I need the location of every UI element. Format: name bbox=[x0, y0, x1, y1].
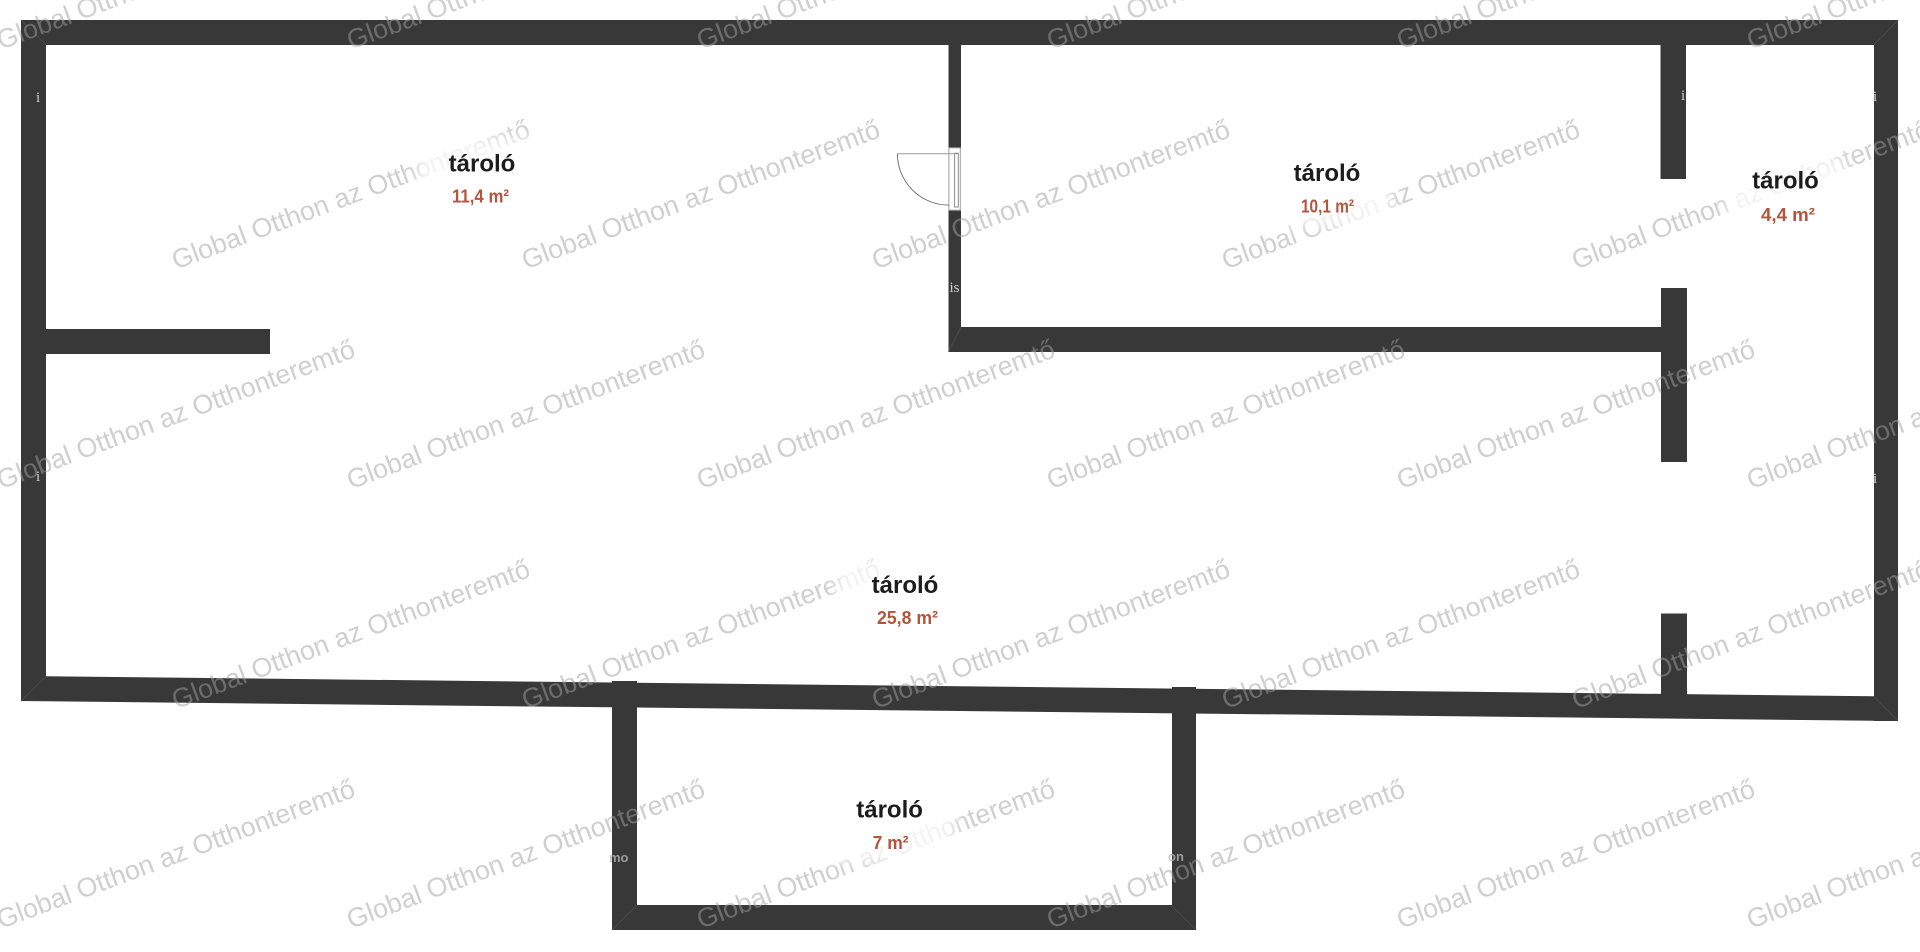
svg-text:on: on bbox=[1168, 849, 1184, 864]
svg-text:tároló: tároló bbox=[449, 151, 516, 178]
svg-text:is: is bbox=[950, 280, 960, 296]
svg-text:i: i bbox=[36, 469, 40, 485]
svg-text:11,4 m²: 11,4 m² bbox=[452, 185, 509, 206]
svg-text:tároló: tároló bbox=[1752, 168, 1819, 195]
svg-text:25,8 m²: 25,8 m² bbox=[877, 607, 938, 628]
svg-text:10,1 m²: 10,1 m² bbox=[1301, 196, 1354, 217]
svg-text:7 m²: 7 m² bbox=[873, 832, 909, 853]
svg-text:i: i bbox=[1873, 471, 1877, 487]
svg-text:i: i bbox=[1681, 88, 1685, 104]
svg-text:tároló: tároló bbox=[1294, 160, 1361, 187]
svg-text:4,4 m²: 4,4 m² bbox=[1761, 204, 1815, 225]
svg-text:i: i bbox=[1873, 89, 1877, 105]
svg-text:tároló: tároló bbox=[856, 797, 923, 824]
svg-text:mo: mo bbox=[609, 850, 629, 865]
svg-text:tároló: tároló bbox=[872, 572, 939, 599]
svg-text:i: i bbox=[36, 90, 40, 106]
